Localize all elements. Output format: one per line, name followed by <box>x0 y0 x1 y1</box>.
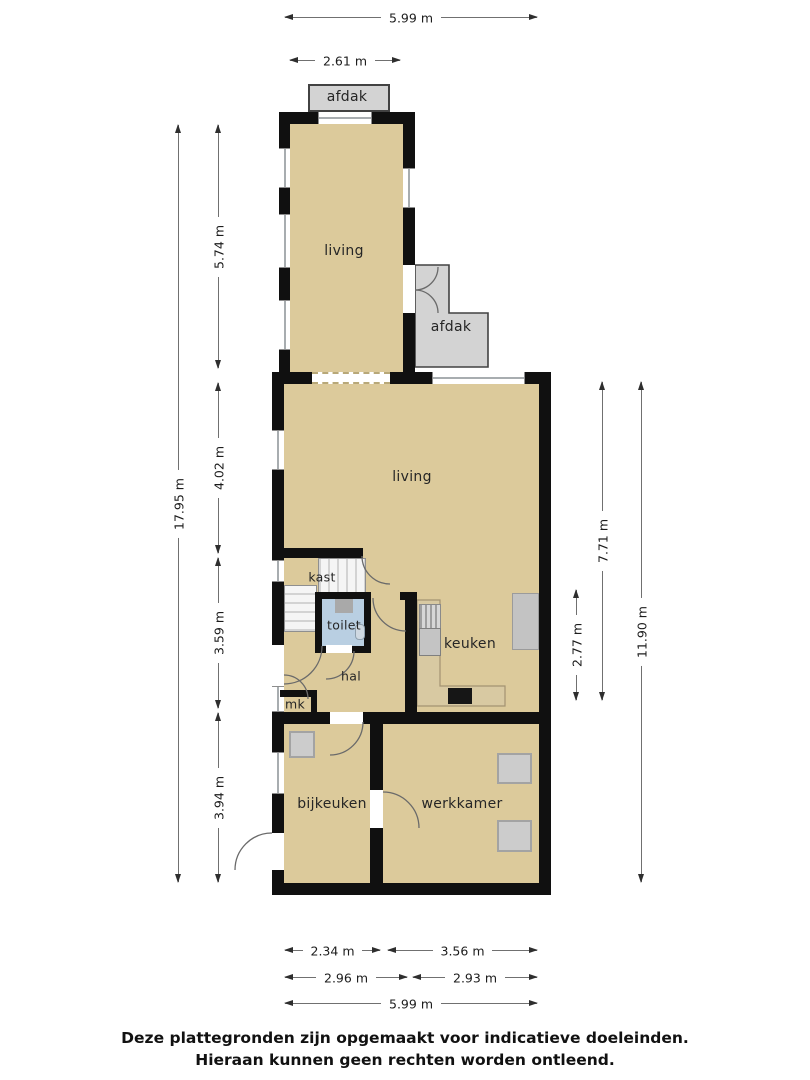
room-label-toilet: toilet <box>327 618 361 633</box>
room-label-living: living <box>392 469 432 485</box>
dim-bottom-bijkeuken-label: 2.34 m <box>303 944 363 959</box>
door-arcs-layer <box>0 0 810 1080</box>
dim-bottom-left-mid-label: 2.96 m <box>316 971 376 986</box>
back-door-arc <box>235 833 272 870</box>
room-label-werkkamer: werkkamer <box>421 796 502 812</box>
dim-bottom-werkkamer-label: 3.56 m <box>433 944 493 959</box>
dim-top-total-label: 5.99 m <box>381 11 441 26</box>
dim-left-total: 17.95 m <box>178 125 179 882</box>
dim-left-bijkeuken: 3.94 m <box>218 713 219 882</box>
dim-left-living-label: 4.02 m <box>212 438 227 498</box>
room-label-living-upper: living <box>324 243 364 259</box>
dim-right-total-label: 11.90 m <box>635 598 650 666</box>
dim-bottom-left-mid: 2.96 m <box>285 977 407 978</box>
bijkeuken-door-arc <box>330 722 363 755</box>
dim-bottom-total: 5.99 m <box>285 1003 537 1004</box>
room-label-mk: mk <box>285 697 305 712</box>
room-label-bijkeuken: bijkeuken <box>297 796 367 812</box>
dim-bottom-right-mid: 2.93 m <box>413 977 537 978</box>
dim-right-total: 11.90 m <box>641 382 642 882</box>
disclaimer: Deze plattegronden zijn opgemaakt voor i… <box>0 1028 810 1071</box>
werkkamer-door-arc <box>383 792 419 828</box>
dim-bottom-total-label: 5.99 m <box>381 997 441 1012</box>
disclaimer-line2: Hieraan kunnen geen rechten worden ontle… <box>0 1050 810 1072</box>
dim-top-afdak-label: 2.61 m <box>315 54 375 69</box>
dim-left-upper-label: 5.74 m <box>212 217 227 277</box>
dim-right-living-label: 7.71 m <box>596 511 611 571</box>
room-label-keuken: keuken <box>444 636 496 652</box>
dim-right-keuken: 2.77 m <box>576 590 577 700</box>
room-label-kast: kast <box>308 570 335 585</box>
dim-right-living: 7.71 m <box>602 382 603 700</box>
dim-left-hal-label: 3.59 m <box>212 603 227 663</box>
keuken-door-arc <box>373 598 406 631</box>
dim-left-total-label: 17.95 m <box>172 470 187 538</box>
dim-bottom-werkkamer: 3.56 m <box>388 950 537 951</box>
dim-left-bijkeuken-label: 3.94 m <box>212 768 227 828</box>
room-label-afdak-side: afdak <box>431 319 472 335</box>
floorplan-canvas: afdak living afdak living kast toilet ha… <box>0 0 810 1080</box>
canopy-door-arc-1 <box>415 267 438 290</box>
dim-top-afdak: 2.61 m <box>290 60 400 61</box>
dim-right-keuken-label: 2.77 m <box>570 615 585 675</box>
room-label-hal: hal <box>341 669 361 684</box>
dim-left-hal: 3.59 m <box>218 558 219 708</box>
room-label-afdak-top: afdak <box>327 89 368 105</box>
dim-left-upper: 5.74 m <box>218 125 219 368</box>
front-door-arc <box>284 646 322 684</box>
canopy-door-arc-2 <box>415 290 438 313</box>
dim-top-total: 5.99 m <box>285 17 537 18</box>
dim-left-living: 4.02 m <box>218 383 219 553</box>
dim-bottom-bijkeuken: 2.34 m <box>285 950 380 951</box>
disclaimer-line1: Deze plattegronden zijn opgemaakt voor i… <box>0 1028 810 1050</box>
kast-door-arc <box>362 556 390 584</box>
dim-bottom-right-mid-label: 2.93 m <box>445 971 505 986</box>
